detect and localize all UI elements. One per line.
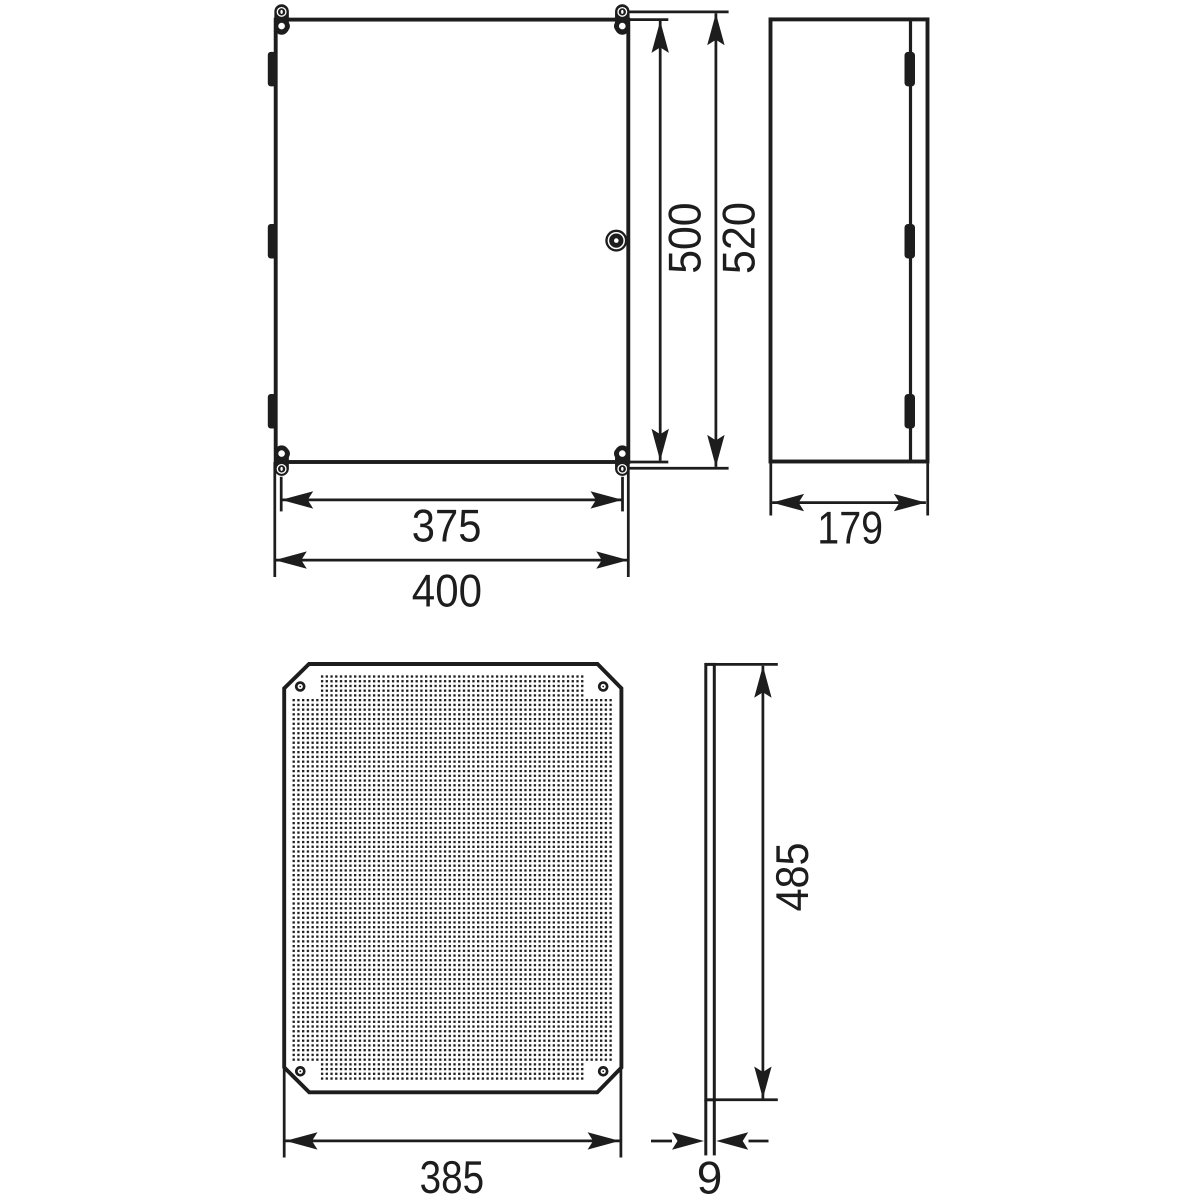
svg-text:500: 500 [658,202,710,273]
svg-text:520: 520 [712,202,764,274]
svg-text:385: 385 [420,1151,485,1200]
svg-text:485: 485 [766,842,818,911]
svg-text:9: 9 [697,1152,723,1200]
svg-text:179: 179 [817,502,883,554]
svg-text:400: 400 [412,565,482,617]
svg-text:375: 375 [412,500,482,552]
